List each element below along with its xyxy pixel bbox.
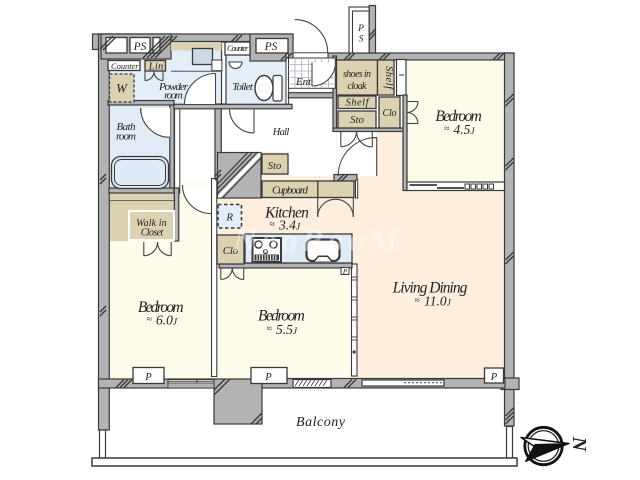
svg-text:Shelf: Shelf	[383, 66, 394, 91]
svg-text:Counter: Counter	[111, 61, 139, 71]
svg-text:shoes in: shoes in	[343, 69, 371, 80]
svg-text:Clo: Clo	[383, 108, 397, 119]
svg-text:≈: ≈	[267, 325, 273, 335]
svg-text:N: N	[568, 436, 590, 453]
svg-text:≈: ≈	[444, 125, 450, 135]
svg-text:room: room	[116, 131, 136, 143]
svg-text:P: P	[490, 372, 498, 383]
svg-text:P: P	[357, 24, 364, 34]
svg-text:W: W	[116, 81, 128, 96]
svg-text:Sto: Sto	[268, 161, 282, 172]
svg-text:Shelf: Shelf	[346, 98, 371, 109]
svg-text:cloak: cloak	[348, 81, 368, 92]
svg-text:≈: ≈	[415, 296, 421, 306]
svg-text:P: P	[264, 372, 272, 383]
svg-text:Balcony: Balcony	[296, 415, 346, 430]
svg-text:P: P	[342, 268, 348, 276]
svg-text:≈: ≈	[147, 315, 153, 325]
svg-text:R: R	[225, 212, 233, 224]
svg-text:NooRooM: NooRooM	[232, 223, 402, 259]
svg-text:P: P	[144, 372, 152, 383]
svg-text:Sto: Sto	[350, 114, 365, 126]
svg-text:room: room	[164, 90, 183, 102]
svg-text:PS: PS	[264, 41, 278, 53]
svg-text:Hall: Hall	[272, 127, 290, 138]
svg-text:Cupboard: Cupboard	[272, 185, 309, 197]
svg-text:PS: PS	[133, 41, 147, 53]
svg-text:Lin: Lin	[148, 62, 164, 73]
svg-text:Ent: Ent	[295, 76, 312, 88]
svg-text:S: S	[359, 35, 364, 45]
svg-text:Closet: Closet	[141, 228, 164, 239]
svg-text:Toilet: Toilet	[232, 81, 253, 93]
svg-text:Counter: Counter	[227, 43, 249, 53]
